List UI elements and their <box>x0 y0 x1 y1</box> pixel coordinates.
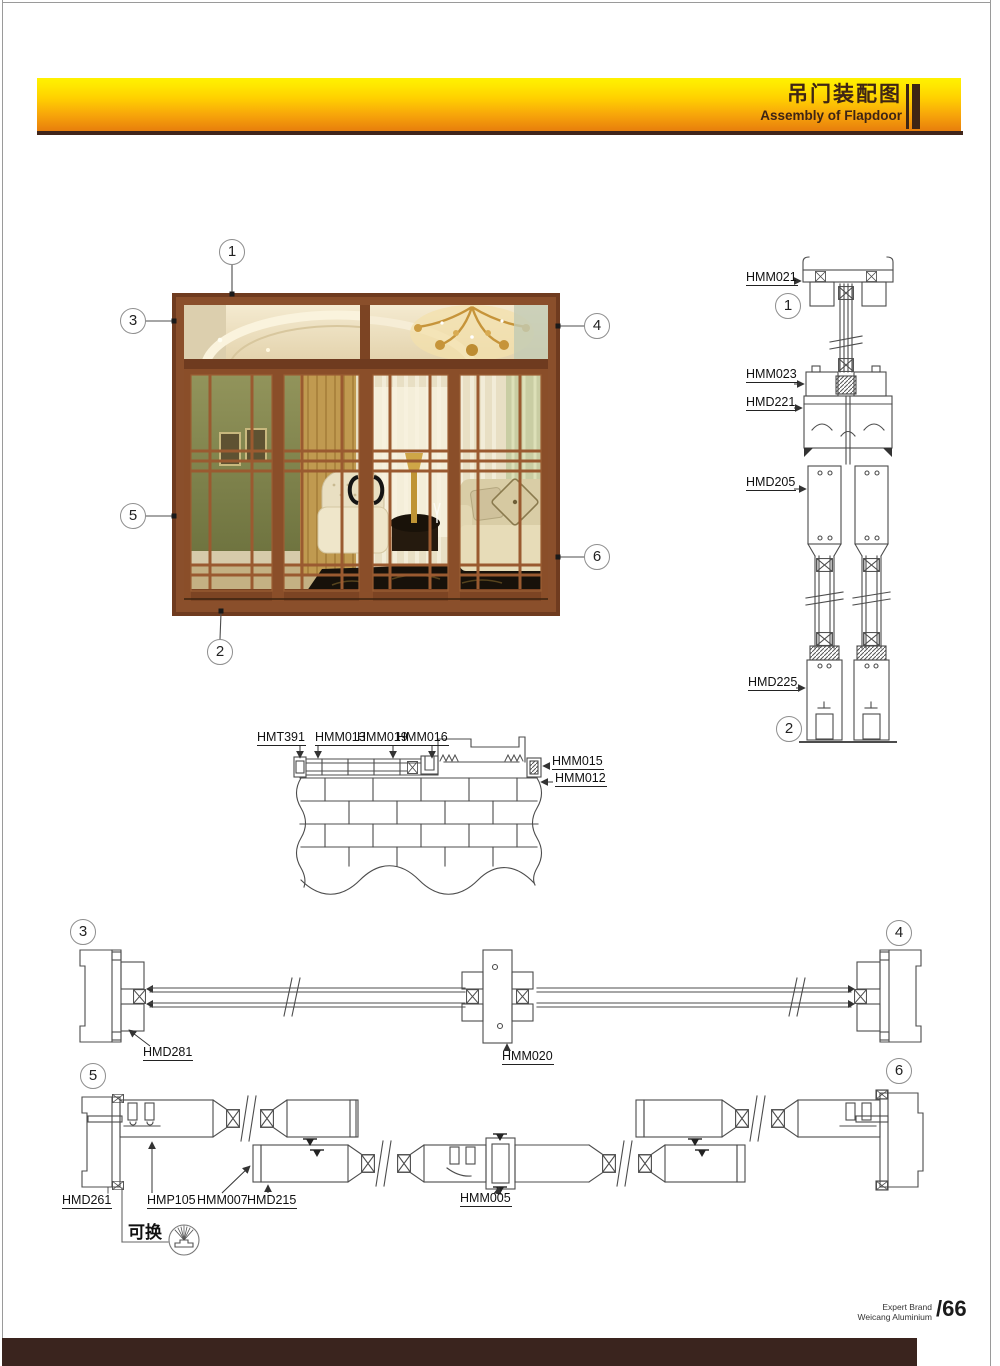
transom-section-callout-3: 3 <box>70 919 96 945</box>
wall-section-label-arrows <box>300 746 553 782</box>
vertical-section-drawing <box>800 257 896 742</box>
panel-section-callout-6: 6 <box>886 1058 912 1084</box>
label-hmm020: HMM020 <box>502 1050 554 1065</box>
callout-6: 6 <box>584 544 610 570</box>
label-hmm007: HMM007 <box>197 1194 249 1209</box>
label-hmd215: HMD215 <box>247 1194 297 1209</box>
callout-3: 3 <box>120 308 146 334</box>
vertical-section-callout-1: 1 <box>775 293 801 319</box>
photo-callout-leaders <box>146 265 584 639</box>
label-hmm015: HMM015 <box>552 755 604 770</box>
label-hmd205: HMD205 <box>746 476 796 491</box>
callout-2: 2 <box>207 639 233 665</box>
label-hmm023: HMM023 <box>746 368 798 383</box>
footer-brand-line1: Expert Brand <box>812 1302 932 1312</box>
label-hmd225: HMD225 <box>748 676 798 691</box>
callout-1: 1 <box>219 239 245 265</box>
technical-drawings <box>0 0 1000 1366</box>
label-hmm012: HMM012 <box>555 772 607 787</box>
panel-section-callout-5: 5 <box>80 1063 106 1089</box>
replaceable-note: 可换 <box>128 1218 162 1243</box>
label-hmt391: HMT391 <box>257 731 306 746</box>
callout-4: 4 <box>584 313 610 339</box>
transom-section-drawing <box>80 950 921 1043</box>
callout-5: 5 <box>120 503 146 529</box>
vertical-section-callout-2: 2 <box>776 716 802 742</box>
panel-section-drawing <box>82 1090 923 1255</box>
label-hmd221: HMD221 <box>746 396 796 411</box>
label-hmm016: HMM016 <box>397 731 449 746</box>
page-number: /66 <box>936 1296 967 1322</box>
label-hmd261: HMD261 <box>62 1194 112 1209</box>
transom-section-callout-4: 4 <box>886 920 912 946</box>
footer-brand: Expert Brand Weicang Aluminium <box>812 1302 932 1322</box>
catalog-page: 吊门装配图 Assembly of Flapdoor <box>0 0 1000 1366</box>
label-hmm021: HMM021 <box>746 271 798 286</box>
label-hmd281: HMD281 <box>143 1046 193 1061</box>
wall-section-drawing <box>294 737 542 894</box>
footer-bar <box>2 1338 917 1366</box>
footer-brand-line2: Weicang Aluminium <box>812 1312 932 1322</box>
label-hmm005: HMM005 <box>460 1192 512 1207</box>
photo-callout-dots <box>172 292 561 614</box>
label-hmp105: HMP105 <box>147 1194 197 1209</box>
